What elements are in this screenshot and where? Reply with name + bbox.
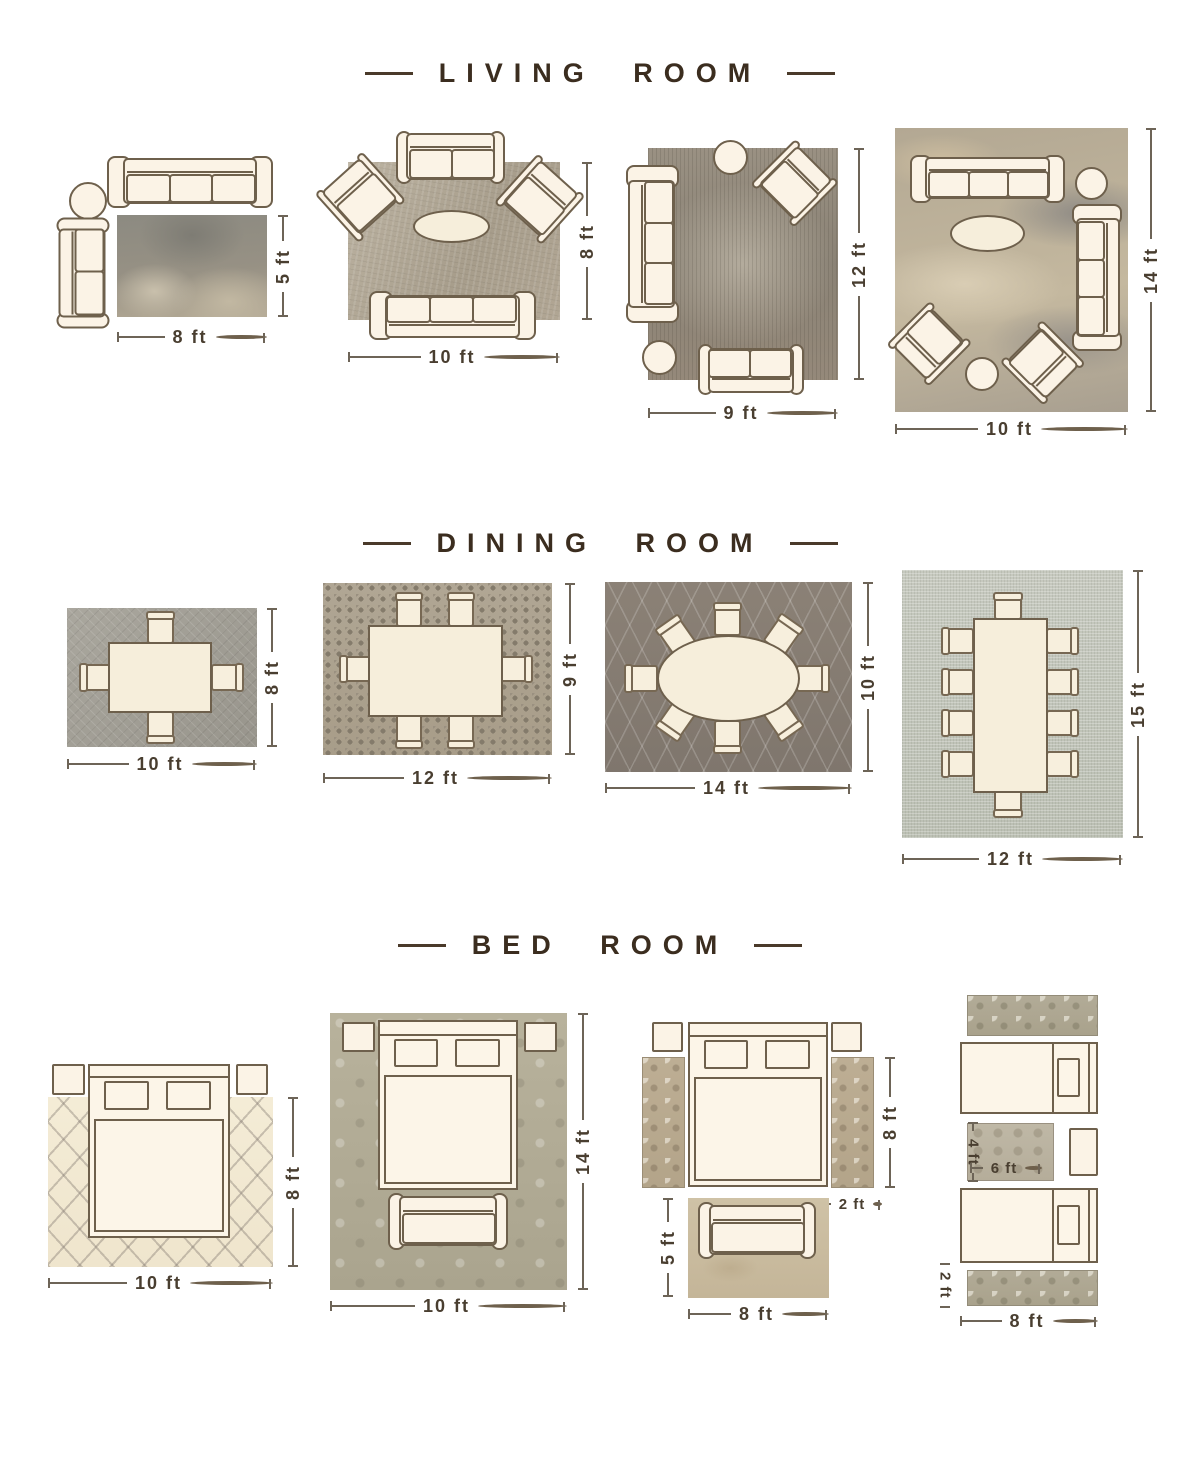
runner-rug: [642, 1057, 685, 1188]
dining-chair: [944, 669, 974, 695]
height-dimension: 8 ft: [576, 162, 598, 320]
height-dimension: 10 ft: [857, 582, 879, 772]
section-title-living-room: LIVING ROOM: [439, 58, 762, 89]
width-dimension: 8 ft: [117, 326, 267, 348]
sofa-cushion: [1077, 296, 1105, 336]
header-dash: [754, 944, 802, 947]
bench-cushion: [711, 1222, 804, 1253]
bed-pillow: [455, 1039, 500, 1067]
runner-rug: [967, 1270, 1098, 1306]
dining-chair: [147, 614, 174, 644]
bed-pillow: [166, 1081, 212, 1110]
height-dimension: 9 ft: [559, 583, 581, 755]
nightstand: [1069, 1128, 1098, 1176]
area-rug: [117, 215, 267, 317]
dining-chair: [396, 714, 422, 746]
loveseat: [59, 220, 109, 327]
sofa-cushion: [644, 222, 674, 265]
runner-length-dimension: 8 ft: [879, 1057, 901, 1188]
bed-divider-line: [1052, 1190, 1054, 1261]
dining-chair: [714, 720, 741, 751]
runner-rug: [831, 1057, 874, 1188]
headboard-line: [380, 1034, 516, 1036]
dining-chair: [1046, 669, 1076, 695]
header-dash: [790, 542, 838, 545]
sofa-cushion: [472, 296, 517, 323]
round-side-table: [965, 357, 999, 391]
header-dash: [363, 542, 411, 545]
nightstand: [342, 1022, 375, 1052]
sofa-cushion: [644, 262, 674, 305]
height-dimension: 12 ft: [848, 148, 870, 380]
bed-pillow: [1057, 1205, 1080, 1245]
bed-divider-line: [1052, 1044, 1054, 1112]
sofa-cushion: [211, 174, 256, 203]
headboard-line: [1088, 1044, 1090, 1112]
height-dimension: 14 ft: [1140, 128, 1162, 412]
nightstand: [831, 1022, 862, 1052]
sofa-cushion: [644, 181, 674, 224]
height-dimension: 5 ft: [272, 215, 294, 317]
sofa-cushion: [75, 228, 105, 273]
section-header-dining-room: DINING ROOM: [0, 528, 1200, 559]
width-dimension: 10 ft: [895, 418, 1128, 440]
dining-chair: [994, 790, 1022, 815]
dining-chair: [1046, 710, 1076, 736]
width-dimension: 10 ft: [348, 346, 560, 368]
nightstand: [652, 1022, 683, 1052]
sofa: [913, 157, 1062, 202]
dining-chair: [1046, 751, 1076, 777]
sofa: [628, 168, 678, 320]
dining-chair: [448, 595, 474, 627]
dining-chair: [1046, 628, 1076, 654]
dining-chair: [211, 664, 241, 691]
section-header-bed-room: BED ROOM: [0, 930, 1200, 961]
oval-coffee-table: [950, 215, 1025, 252]
nightstand: [524, 1022, 557, 1052]
width-dimension: 12 ft: [323, 767, 552, 789]
nightstand: [236, 1064, 268, 1095]
sofa-cushion: [409, 149, 453, 179]
dining-chair: [944, 628, 974, 654]
round-side-table: [69, 182, 107, 220]
round-side-table: [642, 340, 677, 375]
twin-bed: [960, 1042, 1098, 1114]
dining-chair: [500, 656, 530, 682]
bed-blanket: [694, 1077, 822, 1181]
oval-dining-table: [657, 635, 800, 722]
headboard-line: [90, 1076, 228, 1078]
runner-rug: [967, 995, 1098, 1036]
bed-pillow: [104, 1081, 150, 1110]
bench: [700, 1205, 814, 1258]
runner-width-dimension: 2 ft: [826, 1193, 882, 1215]
dining-table: [973, 618, 1048, 793]
sofa-cushion: [169, 174, 214, 203]
bench-cushion: [402, 1213, 497, 1244]
accent-rug-width-dimension: 8 ft: [688, 1303, 829, 1325]
bed-blanket: [384, 1075, 512, 1184]
sofa-cushion: [75, 271, 105, 316]
bench: [390, 1196, 506, 1249]
dining-chair: [994, 595, 1022, 620]
width-dimension: 10 ft: [67, 753, 257, 775]
bed: [88, 1064, 230, 1238]
nightstand: [52, 1064, 85, 1095]
dining-chair: [944, 751, 974, 777]
header-dash: [398, 944, 446, 947]
sofa-cushion: [928, 171, 970, 198]
loveseat: [398, 133, 503, 183]
dining-chair: [796, 665, 827, 692]
height-dimension: 8 ft: [261, 608, 283, 747]
dining-chair: [627, 665, 658, 692]
bed-pillow: [704, 1040, 749, 1069]
bed-pillow: [1057, 1058, 1080, 1097]
bed: [378, 1020, 518, 1190]
height-dimension: 15 ft: [1127, 570, 1149, 838]
width-dimension: 10 ft: [330, 1295, 567, 1317]
sofa-cushion: [1007, 171, 1049, 198]
headboard-line: [1088, 1190, 1090, 1261]
section-title-dining-room: DINING ROOM: [437, 528, 764, 559]
dining-chair: [396, 595, 422, 627]
dining-chair: [714, 605, 741, 636]
dining-table: [368, 625, 503, 717]
section-header-living-room: LIVING ROOM: [0, 58, 1200, 89]
round-side-table: [713, 140, 748, 175]
accent-rug-height-dimension: 5 ft: [657, 1198, 679, 1297]
dining-chair: [944, 710, 974, 736]
sofa-cushion: [1077, 259, 1105, 299]
dining-chair: [448, 714, 474, 746]
sofa-cushion: [386, 296, 431, 323]
width-dimension: 10 ft: [48, 1272, 273, 1294]
section-title-bed-room: BED ROOM: [472, 930, 729, 961]
oval-coffee-table: [413, 210, 490, 243]
rug-size-guide: LIVING ROOM 5 ft 8 ft: [0, 0, 1200, 1467]
sofa: [110, 158, 270, 207]
twin-bed: [960, 1188, 1098, 1263]
sofa-cushion: [451, 149, 495, 179]
headboard-line: [690, 1035, 826, 1037]
sofa-cushion: [749, 349, 792, 377]
header-dash: [365, 72, 413, 75]
bed-pillow: [394, 1039, 439, 1067]
sofa-cushion: [708, 349, 751, 377]
sofa: [372, 292, 533, 338]
sofa: [1073, 207, 1120, 348]
height-dimension: 14 ft: [572, 1013, 594, 1290]
dining-chair: [147, 711, 174, 741]
sofa-cushion: [1077, 221, 1105, 261]
sofa-cushion: [429, 296, 474, 323]
bed-blanket: [94, 1119, 224, 1232]
width-dimension: 14 ft: [605, 777, 852, 799]
sofa-cushion: [968, 171, 1010, 198]
width-dimension: 9 ft: [648, 402, 838, 424]
bed-pillow: [765, 1040, 810, 1069]
runner-width-dimension: 2 ft: [934, 1263, 956, 1308]
bed: [688, 1022, 828, 1187]
header-dash: [787, 72, 835, 75]
loveseat: [700, 345, 802, 393]
round-side-table: [1075, 167, 1108, 200]
width-dimension: 12 ft: [902, 848, 1123, 870]
height-dimension: 8 ft: [282, 1097, 304, 1267]
accent-rug-width-dimension: 6 ft: [970, 1157, 1042, 1179]
sofa-cushion: [126, 174, 171, 203]
runner-length-dimension: 8 ft: [960, 1310, 1098, 1332]
dining-table: [108, 642, 212, 713]
